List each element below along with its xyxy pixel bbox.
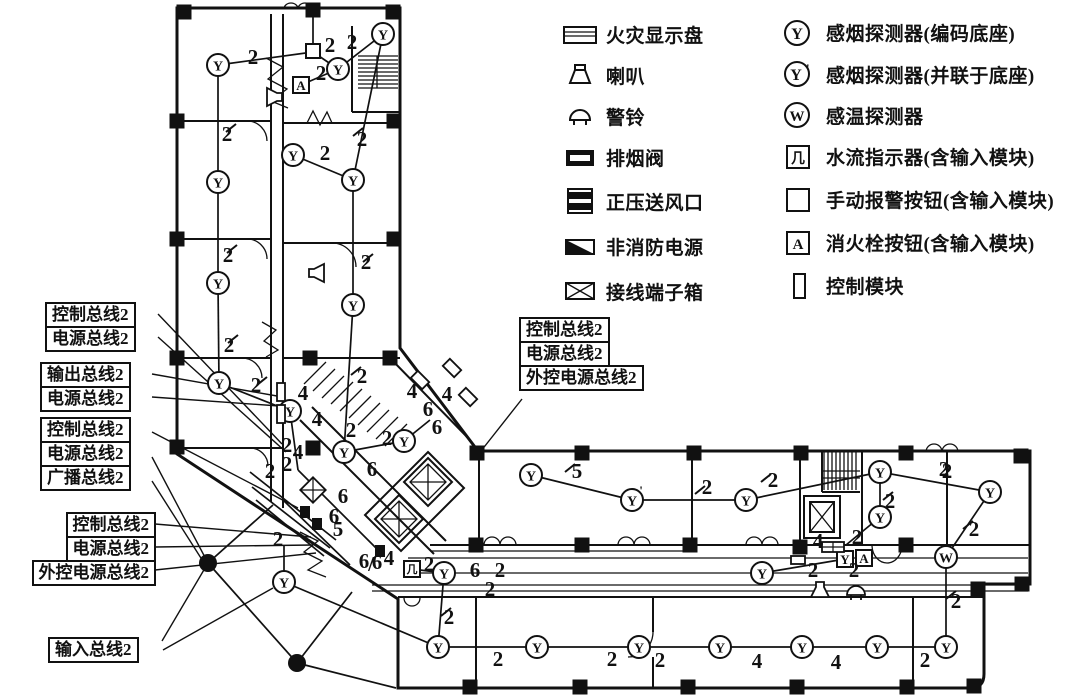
bus-label: 电源总线2 bbox=[45, 326, 136, 352]
detector-letter: Y bbox=[433, 642, 443, 657]
wire-count-label: 2 bbox=[849, 558, 860, 582]
detector-letter: Y bbox=[532, 642, 542, 657]
wire-count-label: 2 bbox=[768, 468, 779, 492]
bus-label: 输入总线2 bbox=[48, 637, 139, 663]
column bbox=[386, 5, 401, 20]
column bbox=[681, 680, 696, 695]
detector-letter: Y bbox=[872, 642, 882, 657]
smoke-detector-parallel-base-icon: Y' bbox=[782, 59, 826, 89]
manual-alarm-button-icon bbox=[782, 185, 826, 215]
wire-count-label: 6 bbox=[338, 484, 349, 508]
detector-letter: Y bbox=[213, 177, 223, 192]
hydrant-button-icon: A bbox=[782, 228, 826, 258]
legend-label: 警铃 bbox=[606, 103, 645, 130]
svg-text:Y: Y bbox=[791, 26, 803, 43]
detector-letter: Y bbox=[399, 436, 409, 451]
legend-label: 感烟探测器(编码底座) bbox=[826, 19, 1015, 46]
wire-count-label: 2 bbox=[320, 141, 331, 165]
wire-count-label: 5 bbox=[333, 517, 344, 541]
box-letter: A bbox=[296, 78, 306, 93]
pressurized-air-outlet-icon bbox=[562, 186, 606, 216]
legend-label: 水流指示器(含输入模块) bbox=[826, 143, 1035, 170]
detector-letter: Y bbox=[213, 278, 223, 293]
wire-count-label: 2 bbox=[493, 647, 504, 671]
wire-count-label: 2 bbox=[251, 373, 262, 397]
column bbox=[470, 446, 485, 461]
wire-count-label: 2 bbox=[655, 648, 666, 672]
wire-count-label: 2 bbox=[347, 30, 358, 54]
damper-symbol bbox=[443, 359, 461, 377]
legend-item: 正压送风口 bbox=[562, 178, 704, 224]
wire-count-label: 4 bbox=[442, 382, 453, 406]
wire-count-label: 2 bbox=[424, 552, 435, 576]
svg-text:': ' bbox=[806, 61, 810, 76]
detector-letter: Y bbox=[627, 495, 637, 510]
speaker-symbol bbox=[267, 88, 282, 106]
detector-letter: Y bbox=[757, 568, 767, 583]
wire-count-label: 2 bbox=[222, 122, 233, 146]
column bbox=[1015, 577, 1030, 592]
detector-letter: Y bbox=[285, 406, 295, 421]
leader-line bbox=[155, 553, 316, 570]
wire-count-label: 6 bbox=[367, 457, 378, 481]
legend-label: 接线端子箱 bbox=[606, 278, 704, 305]
column bbox=[387, 114, 402, 129]
column bbox=[971, 582, 986, 597]
column bbox=[170, 440, 185, 455]
wire-count-label: 2 bbox=[273, 527, 284, 551]
terminal-box-symbol bbox=[300, 477, 325, 502]
detector-letter: Y bbox=[941, 642, 951, 657]
wire-count-label: 6 bbox=[470, 558, 481, 582]
smoke-detector-coded-base-icon: Y bbox=[782, 18, 826, 48]
wire-count-label: 4 bbox=[298, 381, 309, 405]
detector-letter: Y bbox=[333, 64, 343, 79]
column bbox=[303, 351, 318, 366]
wire-count-label: 2 bbox=[444, 605, 455, 629]
wire-count-label: 2 bbox=[361, 250, 372, 274]
wire-count-label: 6 bbox=[432, 415, 443, 439]
bus-label-group-b: 输出总线2 电源总线2 bbox=[40, 362, 131, 412]
bus-label: 控制总线2 bbox=[66, 512, 157, 538]
junction-dot bbox=[199, 554, 217, 572]
detector-letter: Y bbox=[797, 642, 807, 657]
wire-count-label: 2 bbox=[485, 577, 496, 601]
detector-letter: Y bbox=[875, 467, 885, 482]
wire-count-label: 4 bbox=[407, 379, 418, 403]
detector-letter: Y bbox=[378, 29, 388, 44]
wire bbox=[218, 52, 313, 65]
column bbox=[469, 538, 484, 553]
legend-item: 非消防电源 bbox=[562, 224, 704, 269]
wire-count-label: 2 bbox=[224, 333, 235, 357]
legend-column-right: Y 感烟探测器(编码底座) Y' 感烟探测器(并联于底座) W 感温探测器 几 … bbox=[782, 12, 1054, 307]
bus-label-group-e: 输入总线2 bbox=[48, 637, 139, 663]
wire-count-label: 4 bbox=[831, 650, 842, 674]
column bbox=[900, 680, 915, 695]
wire-count-label: 2 bbox=[607, 647, 618, 671]
wire-count-label: 2 bbox=[316, 61, 327, 85]
legend-item: Y' 感烟探测器(并联于底座) bbox=[782, 53, 1054, 95]
detector-letter: Y bbox=[634, 642, 644, 657]
column bbox=[383, 351, 398, 366]
legend-item: 警铃 bbox=[562, 96, 704, 137]
module-symbol bbox=[312, 518, 322, 530]
detector-letter: Y bbox=[339, 447, 349, 462]
leader-line bbox=[163, 588, 273, 650]
leader-line bbox=[155, 545, 313, 547]
wire-count-label: 2 bbox=[346, 418, 357, 442]
wire-count-label: 2 bbox=[265, 459, 276, 483]
bus-label: 电源总线2 bbox=[40, 441, 131, 467]
legend-item: 几 水流指示器(含输入模块) bbox=[782, 135, 1054, 178]
legend-label: 感烟探测器(并联于底座) bbox=[826, 61, 1035, 88]
wire bbox=[218, 283, 219, 383]
legend-column-left: 火灾显示盘 喇叭 警铃 排烟阀 正压送风口 非消防电源 接线端子箱 bbox=[562, 14, 704, 313]
bus-label: 电源总线2 bbox=[519, 341, 610, 367]
column bbox=[899, 538, 914, 553]
detector-letter: Y bbox=[985, 487, 995, 502]
legend-item: W 感温探测器 bbox=[782, 95, 1054, 135]
wire-count-label: 2 bbox=[808, 558, 819, 582]
wire bbox=[297, 663, 396, 688]
terminal-box-icon bbox=[562, 276, 606, 306]
leader-line bbox=[152, 481, 206, 566]
column bbox=[387, 232, 402, 247]
bus-label: 输出总线2 bbox=[40, 362, 131, 388]
detector-letter: Y bbox=[526, 470, 536, 485]
wire-count-label: 4 bbox=[384, 546, 395, 570]
wire-count-label: 2 bbox=[852, 525, 863, 549]
control-module-symbol bbox=[791, 556, 805, 564]
wire-count-label: 4 bbox=[752, 649, 763, 673]
bus-label: 控制总线2 bbox=[519, 317, 610, 343]
legend-item: A 消火栓按钮(含输入模块) bbox=[782, 221, 1054, 264]
bus-label-group-c: 控制总线2 电源总线2 广播总线2 bbox=[40, 417, 131, 491]
control-module-symbol bbox=[277, 405, 285, 423]
wire-count-label: 2 bbox=[382, 426, 393, 450]
module-symbol bbox=[300, 506, 310, 518]
bus-label: 控制总线2 bbox=[45, 302, 136, 328]
column bbox=[573, 680, 588, 695]
svg-text:几: 几 bbox=[791, 151, 805, 167]
control-module-icon bbox=[782, 271, 826, 301]
legend-label: 消火栓按钮(含输入模块) bbox=[826, 229, 1035, 256]
alarm-bell-icon bbox=[562, 102, 606, 132]
wire-count-label: 2 bbox=[357, 364, 368, 388]
fire-alarm-floor-plan: YYYYYYYYYYYYYYYYYYYYYYYYYYYY'WAAY几222222… bbox=[0, 0, 1080, 700]
bus-label-group-a: 控制总线2 电源总线2 bbox=[45, 302, 136, 352]
column bbox=[967, 679, 982, 694]
detector-letter: Y bbox=[213, 60, 223, 75]
bus-label: 广播总线2 bbox=[40, 465, 131, 491]
leader-line bbox=[481, 399, 522, 451]
wire-count-label: 2 bbox=[282, 452, 293, 476]
speaker-icon bbox=[562, 61, 606, 91]
box-letter: A bbox=[859, 551, 869, 566]
wire-count-label: 5 bbox=[572, 459, 583, 483]
detector-letter: Y bbox=[741, 495, 751, 510]
wire-count-label: 4 bbox=[813, 529, 824, 553]
column bbox=[575, 538, 590, 553]
wire-count-label: 2 bbox=[702, 475, 713, 499]
wire-count-label: 2 bbox=[942, 459, 953, 483]
bus-label: 外控电源总线2 bbox=[519, 365, 644, 391]
manual-alarm-button-symbol bbox=[306, 44, 320, 58]
column bbox=[463, 680, 478, 695]
bus-label: 电源总线2 bbox=[40, 386, 131, 412]
detector-letter: Y bbox=[214, 378, 224, 393]
legend-label: 正压送风口 bbox=[606, 188, 704, 215]
column bbox=[683, 538, 698, 553]
wire-count-label: 2 bbox=[495, 558, 506, 582]
legend-item: 控制模块 bbox=[782, 264, 1054, 307]
column bbox=[306, 3, 321, 18]
legend-item: Y 感烟探测器(编码底座) bbox=[782, 12, 1054, 53]
detector-letter: Y bbox=[875, 512, 885, 527]
wire bbox=[297, 592, 352, 663]
column bbox=[177, 5, 192, 20]
detector-letter: Y bbox=[348, 300, 358, 315]
legend-label: 排烟阀 bbox=[606, 144, 665, 171]
wire-count-label: 4 bbox=[293, 440, 304, 464]
bus-label: 外控电源总线2 bbox=[32, 560, 157, 586]
legend-item: 排烟阀 bbox=[562, 137, 704, 178]
heat-detector-icon: W bbox=[782, 100, 826, 130]
control-module-symbol bbox=[277, 383, 285, 401]
speaker-symbol bbox=[309, 264, 324, 282]
detector-letter: Y bbox=[439, 568, 449, 583]
svg-text:Y: Y bbox=[790, 67, 802, 84]
speaker-symbol bbox=[811, 582, 829, 597]
parallel-prime-mark: ' bbox=[639, 483, 643, 498]
column bbox=[794, 446, 809, 461]
bus-label-group-mid: 控制总线2 电源总线2 外控电源总线2 bbox=[519, 317, 644, 391]
svg-text:A: A bbox=[793, 237, 804, 253]
smoke-exhaust-valve-icon bbox=[562, 143, 606, 173]
wire-count-label: 2 bbox=[325, 33, 336, 57]
non-fire-power-icon bbox=[562, 232, 606, 262]
detector-letter: Y bbox=[288, 150, 298, 165]
bus-label-group-d: 控制总线2 电源总线2 外控电源总线2 bbox=[0, 512, 156, 586]
detector-letter: Y bbox=[279, 577, 289, 592]
legend-label: 火灾显示盘 bbox=[606, 21, 704, 48]
wire-count-label: 4 bbox=[312, 407, 323, 431]
svg-text:W: W bbox=[790, 109, 805, 125]
column bbox=[687, 446, 702, 461]
bus-label: 电源总线2 bbox=[66, 536, 157, 562]
legend-label: 非消防电源 bbox=[606, 233, 704, 260]
legend-label: 手动报警按钮(含输入模块) bbox=[826, 186, 1054, 213]
water-flow-indicator-icon: 几 bbox=[782, 142, 826, 172]
wire bbox=[880, 472, 990, 492]
column bbox=[306, 441, 321, 456]
wire-count-label: 2 bbox=[357, 127, 368, 151]
column bbox=[170, 114, 185, 129]
fire-display-panel-icon bbox=[562, 20, 606, 50]
legend-label: 喇叭 bbox=[606, 62, 645, 89]
flow-glyph: 几 bbox=[407, 563, 418, 576]
bus-label: 控制总线2 bbox=[40, 417, 131, 443]
column bbox=[899, 446, 914, 461]
damper-symbol bbox=[459, 388, 477, 406]
wire-count-label: 2 bbox=[248, 45, 259, 69]
wire bbox=[208, 505, 273, 563]
column bbox=[790, 680, 805, 695]
detector-letter: Y bbox=[715, 642, 725, 657]
legend-item: 喇叭 bbox=[562, 55, 704, 96]
legend-label: 控制模块 bbox=[826, 272, 904, 299]
wire-count-label: 2 bbox=[951, 589, 962, 613]
column bbox=[170, 351, 185, 366]
legend-item: 手动报警按钮(含输入模块) bbox=[782, 178, 1054, 221]
wire-count-label: 6 bbox=[372, 550, 383, 574]
column bbox=[1014, 449, 1029, 464]
legend-item: 火灾显示盘 bbox=[562, 14, 704, 55]
wire-count-label: 2 bbox=[885, 489, 896, 513]
wire-count-label: 2 bbox=[223, 243, 234, 267]
column bbox=[170, 232, 185, 247]
junction-dot bbox=[288, 654, 306, 672]
wire bbox=[284, 582, 438, 647]
legend-item: 接线端子箱 bbox=[562, 269, 704, 313]
wire-count-label: 2 bbox=[920, 648, 931, 672]
detector-letter: Y bbox=[348, 175, 358, 190]
column bbox=[793, 540, 808, 555]
detector-letter: W bbox=[939, 552, 953, 567]
wire-count-label: 2 bbox=[969, 517, 980, 541]
legend-label: 感温探测器 bbox=[826, 102, 924, 129]
